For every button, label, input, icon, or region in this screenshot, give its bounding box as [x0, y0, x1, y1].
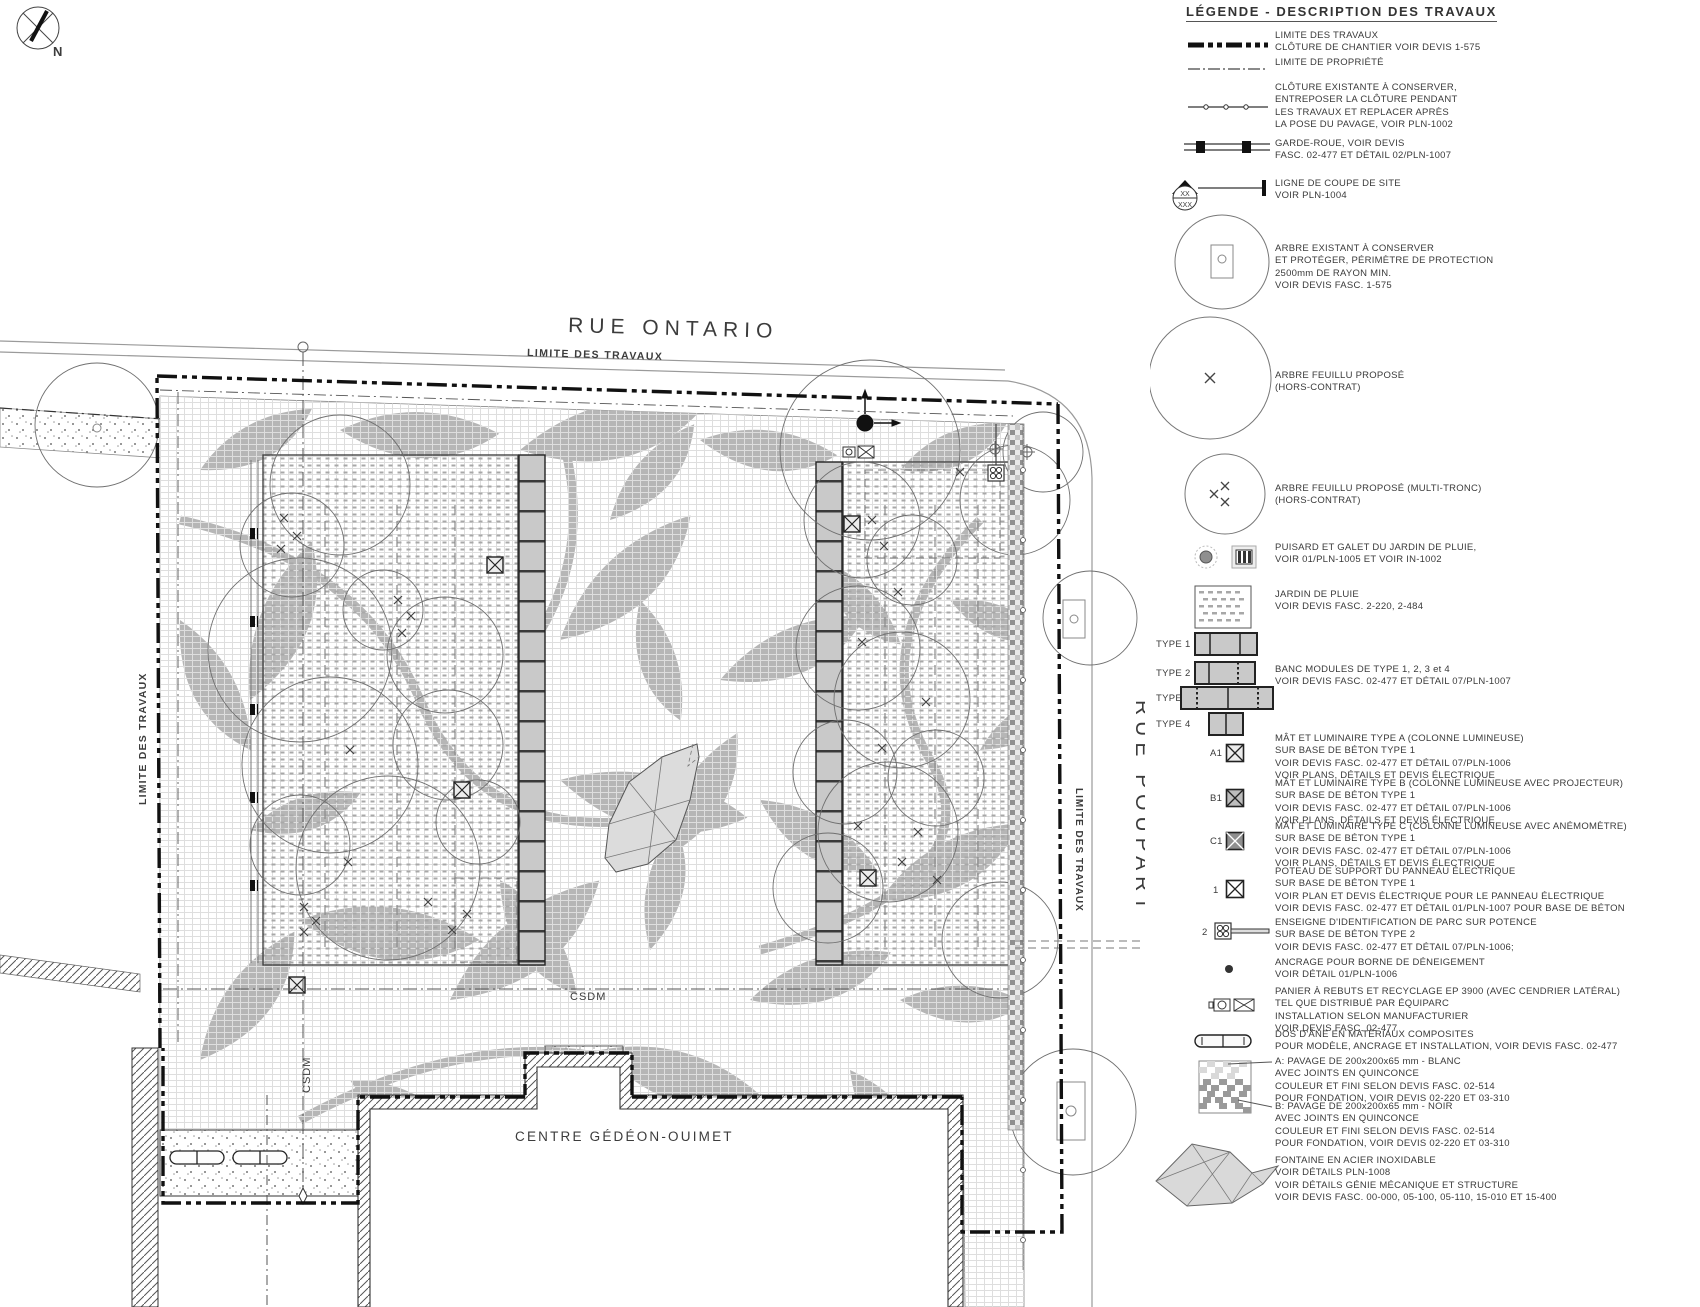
rue-poupart-label: RUE POUPART — [1131, 700, 1145, 916]
legend-item-text: FONTAINE EN ACIER INOXIDABLE VOIR DÉTAIL… — [1275, 1155, 1700, 1204]
legend-item-text: DOS D'ÂNE EN MATÉRIAUX COMPOSITES POUR M… — [1275, 1029, 1700, 1054]
dark-paving-strip — [1008, 424, 1023, 1130]
multistem-tree-symbol — [1184, 452, 1268, 541]
csdm-vertical-label: CSDM — [301, 1057, 313, 1093]
work-limit-line-symbol — [1188, 36, 1268, 54]
paving-sample-symbol — [1198, 1060, 1274, 1121]
legend-item-text: BANC MODULES DE TYPE 1, 2, 3 et 4 VOIR D… — [1275, 664, 1700, 689]
legend-title: LÉGENDE - DESCRIPTION DES TRAVAUX — [1186, 4, 1497, 22]
svg-text:XXX: XXX — [1178, 202, 1192, 209]
bench-type-1-symbol — [1194, 632, 1258, 661]
existing-tree-symbol — [1174, 212, 1274, 317]
rain-garden-symbol — [1194, 585, 1252, 634]
legend-item-text: ARBRE FEUILLU PROPOSÉ (MULTI-TRONC) (HOR… — [1275, 483, 1700, 508]
legend-item-text-paving-b: B: PAVAGE DE 200x200x65 mm - NOIR AVEC J… — [1275, 1101, 1700, 1150]
mast-c-symbol — [1225, 831, 1245, 856]
property-line-symbol — [1188, 59, 1268, 77]
proposed-tree-symbol — [1150, 315, 1278, 448]
legend-item-text: PANIER À REBUTS ET RECYCLAGE EP 3900 (AV… — [1275, 986, 1700, 1035]
hatched-walk — [0, 955, 140, 992]
limite-travaux-top-label: LIMITE DES TRAVAUX — [527, 347, 664, 363]
anchor-symbol — [1223, 962, 1235, 980]
bench-module-strip-left — [519, 455, 545, 965]
limite-travaux-left-label: LIMITE DES TRAVAUX — [137, 672, 149, 805]
waste-bin-legend-symbol — [1208, 997, 1258, 1018]
legend-item-text: JARDIN DE PLUIE VOIR DEVIS FASC. 2-220, … — [1275, 589, 1700, 614]
legend-item-text: LIGNE DE COUPE DE SITE VOIR PLN-1004 — [1275, 178, 1700, 203]
tree-canopy — [1043, 571, 1137, 665]
legend-item-text: CLÔTURE EXISTANTE À CONSERVER, ENTREPOSE… — [1275, 82, 1700, 131]
bench-type-4-label: TYPE 4 — [1156, 719, 1191, 730]
csdm-horizontal-label: CSDM — [570, 991, 606, 1003]
wheel-guard-line — [250, 460, 258, 963]
svg-text:XX: XX — [1180, 191, 1190, 198]
bench-module-strip-right — [816, 462, 842, 965]
mast-a-symbol — [1225, 743, 1245, 768]
mast-b-tag: B1 — [1210, 793, 1222, 804]
mast-a-tag: A1 — [1210, 748, 1222, 759]
legend-item-text: MÂT ET LUMINAIRE TYPE C (COLONNE LUMINEU… — [1275, 821, 1700, 870]
bench-type-4-symbol — [1208, 712, 1244, 741]
legend-item-text: ARBRE EXISTANT À CONSERVER ET PROTÉGER, … — [1275, 243, 1700, 292]
rain-garden-left — [263, 455, 518, 965]
legend-item-text: ANCRAGE POUR BORNE DE DÉNEIGEMENT VOIR D… — [1275, 957, 1700, 982]
legend-item-text: LIMITE DE PROPRIÉTÉ — [1275, 57, 1700, 69]
legend-item-text: MÂT ET LUMINAIRE TYPE A (COLONNE LUMINEU… — [1275, 733, 1700, 782]
north-arrow: N — [17, 7, 62, 59]
wheel-guard-symbol — [1184, 140, 1270, 159]
rue-ontario-curb-outer — [0, 341, 1005, 370]
legend-item-text: LIMITE DES TRAVAUX CLÔTURE DE CHANTIER V… — [1275, 30, 1700, 55]
building-annex-wall — [132, 1048, 158, 1307]
rain-garden-right — [843, 462, 1010, 965]
limite-travaux-right-label: LIMITE DES TRAVAUX — [1073, 788, 1084, 912]
north-label: N — [53, 44, 62, 59]
legend-item-text: POTEAU DE SUPPORT DU PANNEAU ÉLECTRIQUE … — [1275, 866, 1700, 915]
catch-basin-symbol — [1194, 544, 1264, 575]
waste-bin-symbol — [843, 446, 874, 458]
legend-item-text: GARDE-ROUE, VOIR DEVIS FASC. 02-477 ET D… — [1275, 138, 1700, 163]
site-plan-sheet: RUE ONTARIO LIMITE DES TRAVAUX LIMITE DE… — [0, 0, 1700, 1307]
panel-post-tag: 1 — [1213, 885, 1219, 896]
legend-panel: LÉGENDE - DESCRIPTION DES TRAVAUX LIMITE… — [1150, 0, 1700, 1307]
legend-item-text: PUISARD ET GALET DU JARDIN DE PLUIE, VOI… — [1275, 542, 1700, 567]
alley — [160, 1130, 358, 1196]
mast-b-symbol — [1225, 788, 1245, 813]
speed-bump-legend-symbol — [1194, 1033, 1252, 1054]
fountain-legend-symbol — [1150, 1135, 1280, 1218]
mast-c-tag: C1 — [1210, 836, 1223, 847]
legend-item-text: ENSEIGNE D'IDENTIFICATION DE PARC SUR PO… — [1275, 917, 1700, 954]
legend-item-text: MÂT ET LUMINAIRE TYPE B (COLONNE LUMINEU… — [1275, 778, 1700, 827]
building-label: CENTRE GÉDÉON-OUIMET — [515, 1129, 734, 1144]
panel-post-symbol — [1225, 879, 1245, 904]
bench-type-3-symbol — [1180, 686, 1274, 715]
bench-type-1-label: TYPE 1 — [1156, 639, 1191, 650]
site-plan-drawing: RUE ONTARIO LIMITE DES TRAVAUX LIMITE DE… — [0, 0, 1145, 1307]
existing-sidewalk-strip — [0, 408, 163, 458]
park-sign-legend-symbol — [1214, 921, 1272, 946]
existing-fence-symbol — [1188, 98, 1268, 116]
rue-ontario-label: RUE ONTARIO — [568, 314, 779, 343]
legend-item-text-paving-a: A: PAVAGE DE 200x200x65 mm - BLANC AVEC … — [1275, 1056, 1700, 1105]
park-sign-tag: 2 — [1202, 927, 1208, 938]
bench-type-2-label: TYPE 2 — [1156, 668, 1191, 679]
legend-item-text: ARBRE FEUILLU PROPOSÉ (HORS-CONTRAT) — [1275, 370, 1700, 395]
